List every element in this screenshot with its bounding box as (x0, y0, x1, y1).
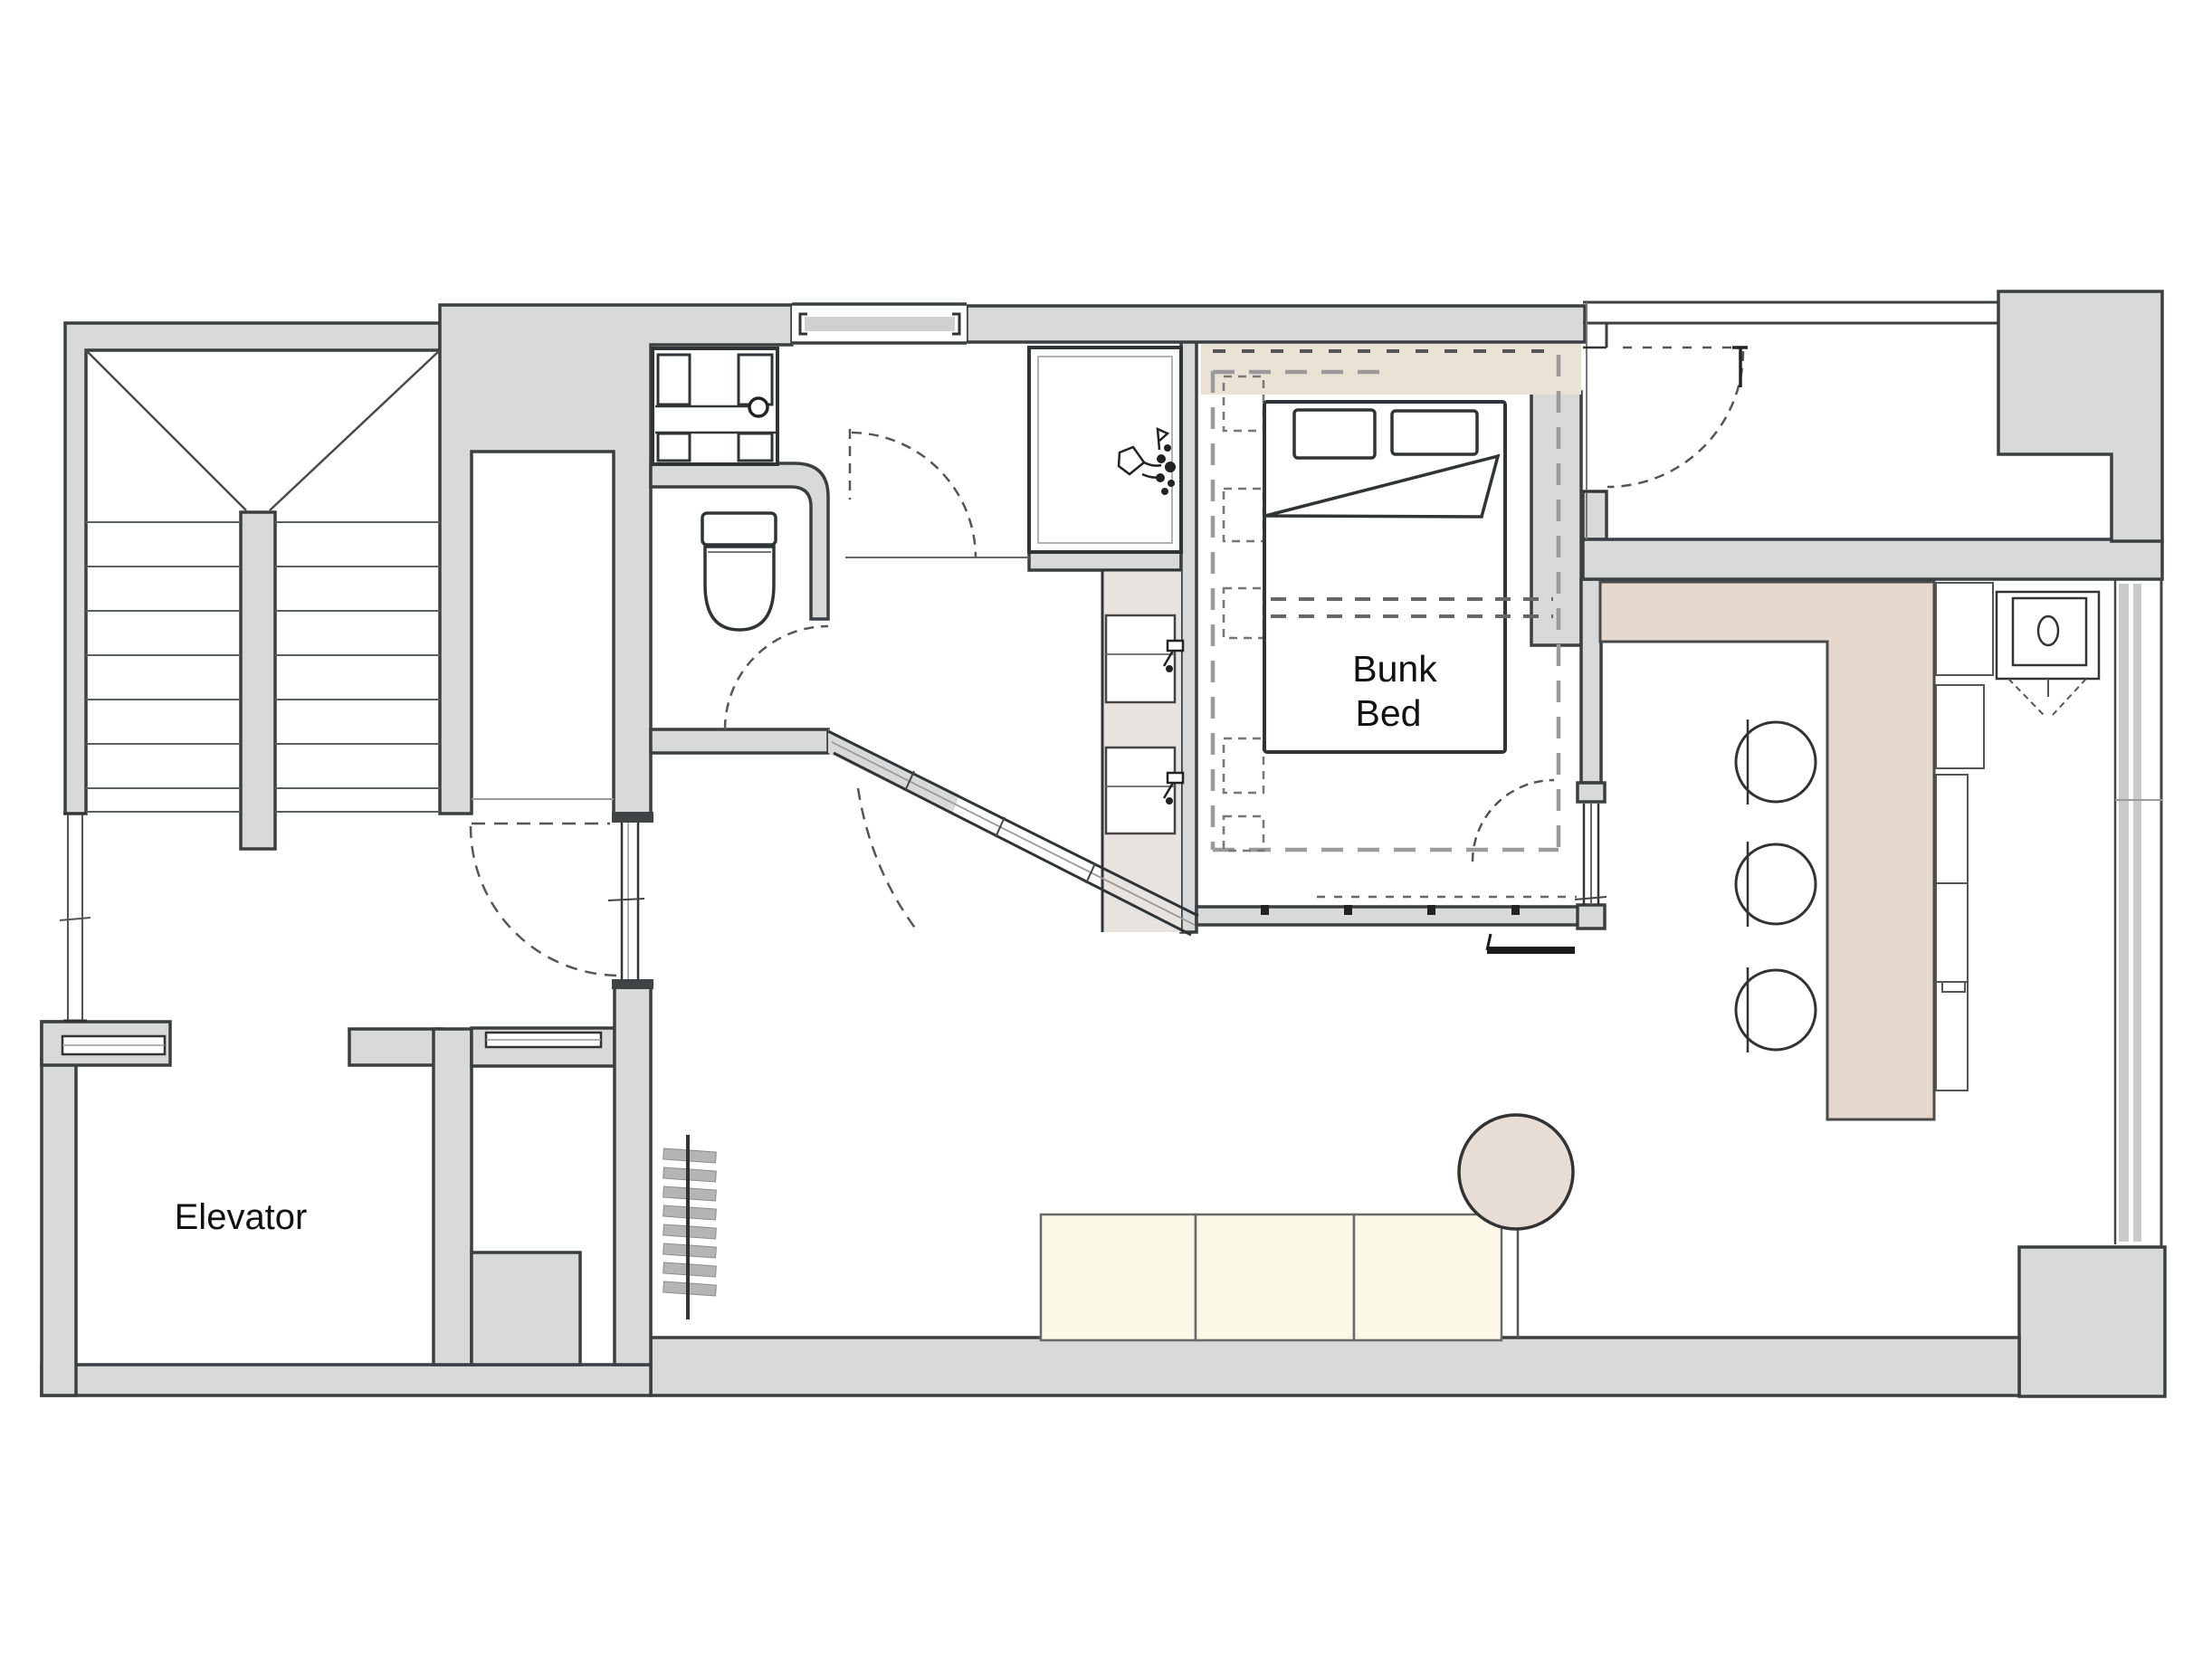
svg-text:Bunk: Bunk (1352, 648, 1437, 690)
svg-text:Bed: Bed (1356, 692, 1422, 734)
svg-text:Elevator: Elevator (175, 1197, 308, 1237)
